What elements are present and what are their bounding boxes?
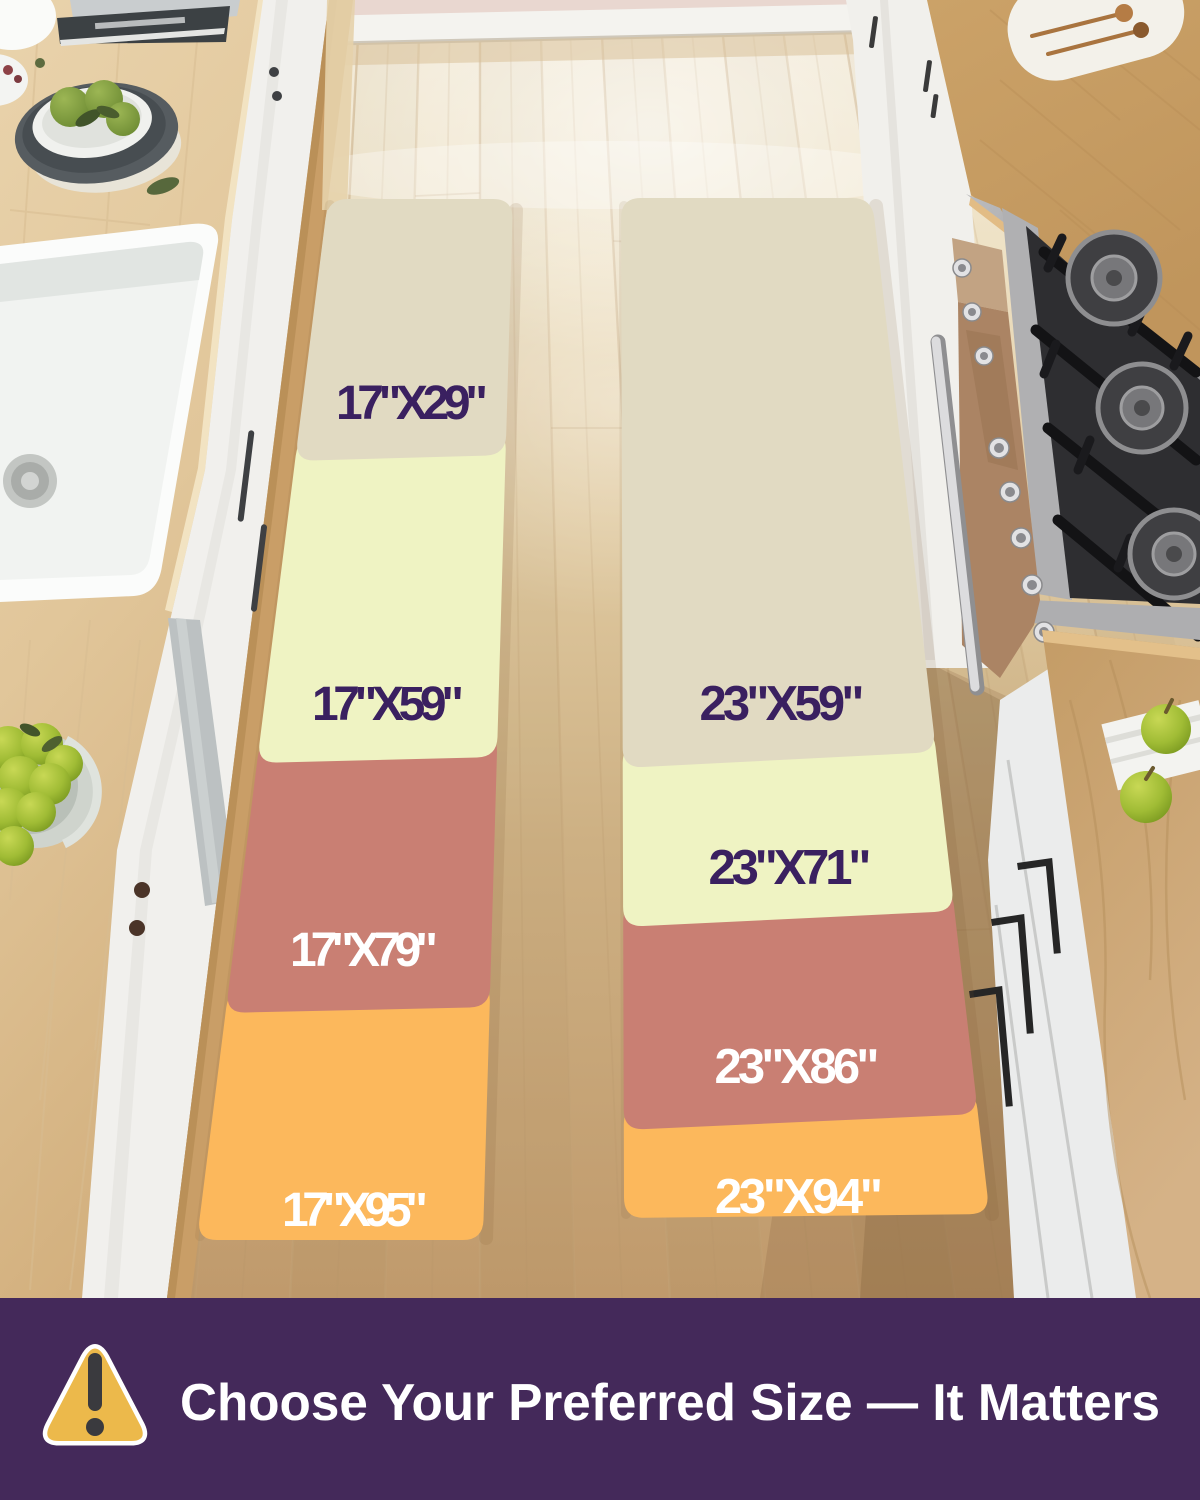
svg-text:17"X29": 17"X29" — [336, 377, 488, 430]
svg-text:Choose Your Preferred Size — I: Choose Your Preferred Size — It Matters — [180, 1374, 1160, 1432]
svg-text:17"X95": 17"X95" — [282, 1184, 428, 1237]
svg-text:23"X86": 23"X86" — [715, 1040, 880, 1094]
svg-text:23"X94": 23"X94" — [715, 1170, 883, 1224]
svg-text:17"X59": 17"X59" — [312, 678, 464, 731]
svg-text:23"X59": 23"X59" — [700, 677, 865, 731]
svg-text:17"X79": 17"X79" — [290, 924, 438, 977]
svg-text:23"X71": 23"X71" — [709, 841, 872, 895]
